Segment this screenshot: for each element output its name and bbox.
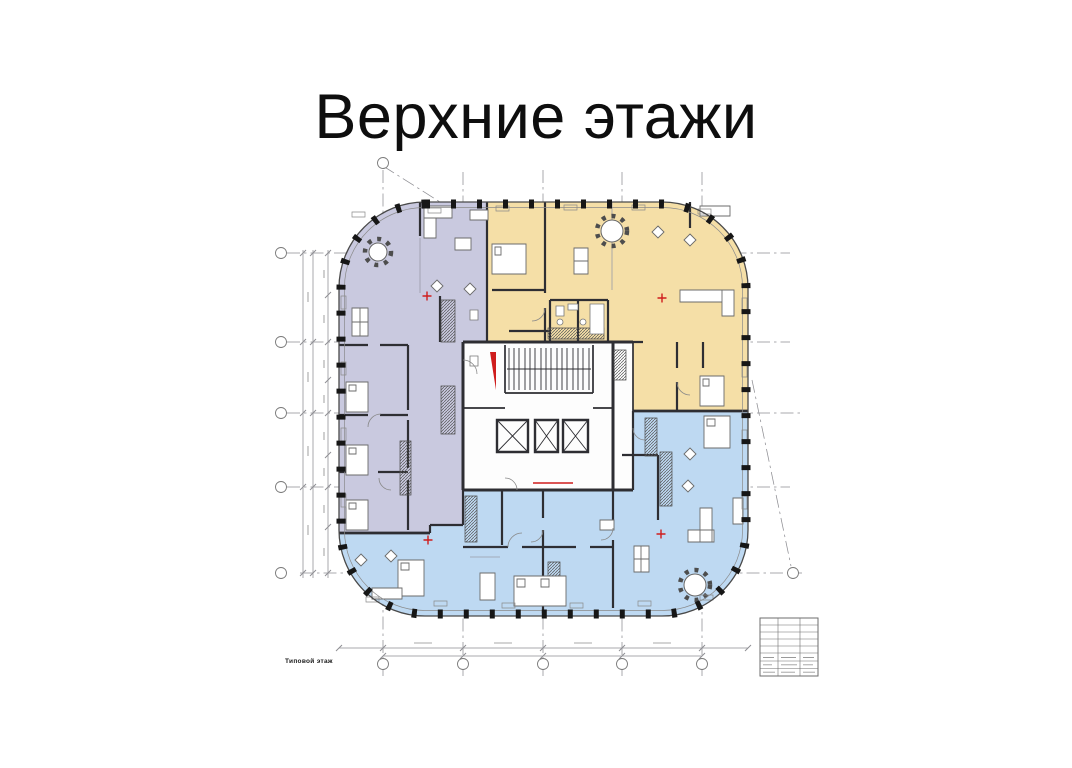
grid-bubble <box>276 248 287 259</box>
grid-bubble <box>276 408 287 419</box>
dining-table <box>369 243 387 261</box>
grid-bubble <box>276 568 287 579</box>
dining-table <box>601 220 623 242</box>
grid-bubble <box>788 568 799 579</box>
sink <box>557 319 563 325</box>
grid-bubble <box>617 659 628 670</box>
grid-bubble <box>458 659 469 670</box>
grid-bubble <box>378 158 389 169</box>
plan-caption: Типовой этаж <box>285 657 333 665</box>
grid-bubble <box>378 659 389 670</box>
slide: Верхние этажи <box>0 0 1072 768</box>
title-block-border <box>760 618 818 676</box>
sink <box>580 319 586 325</box>
grid-bubble <box>538 659 549 670</box>
grid-bubble <box>697 659 708 670</box>
dining-table <box>684 574 706 596</box>
title-block-stamp <box>760 618 818 676</box>
grid-bubble <box>276 482 287 493</box>
grid-bubble <box>276 337 287 348</box>
floor-plan-drawing: Типовой этаж <box>0 0 1072 768</box>
